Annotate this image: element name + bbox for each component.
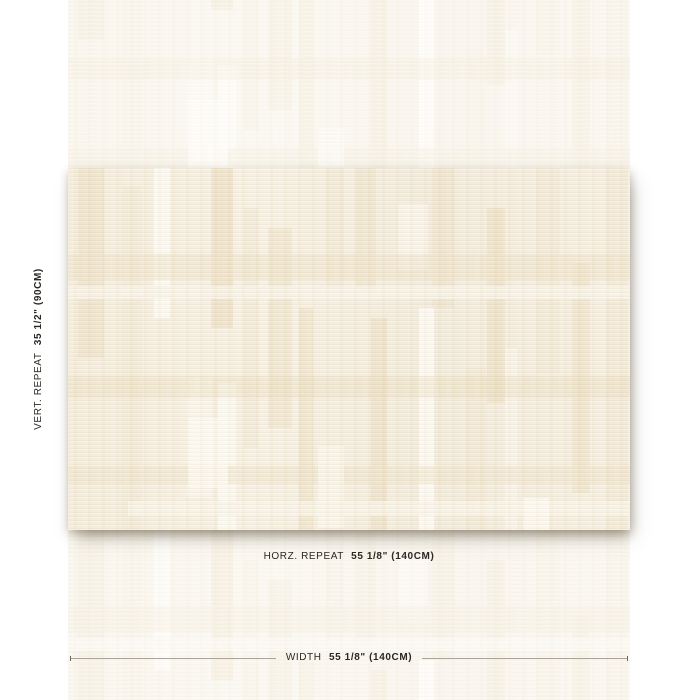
width-text: WIDTH bbox=[286, 652, 322, 663]
horizontal-repeat-label: HORZ. REPEAT 55 1/8" (140CM) bbox=[68, 551, 630, 563]
vertical-repeat-value: 35 1/2" (90CM) bbox=[33, 268, 44, 345]
width-dimension: WIDTH 55 1/8" (140CM) bbox=[70, 652, 628, 664]
vertical-repeat-label: VERT. REPEAT 35 1/2" (90CM) bbox=[33, 268, 45, 430]
pattern-wash-overlay bbox=[68, 0, 630, 168]
horizontal-repeat-value: 55 1/8" (140CM) bbox=[351, 551, 434, 562]
dimension-line-left bbox=[70, 658, 276, 659]
product-spec-image: VERT. REPEAT 35 1/2" (90CM) HORZ. REPEAT… bbox=[0, 0, 700, 700]
pattern-tile bbox=[68, 168, 630, 530]
vertical-repeat-text: VERT. REPEAT bbox=[33, 353, 44, 430]
stria-texture-overlay bbox=[68, 168, 630, 530]
horizontal-repeat-text: HORZ. REPEAT bbox=[264, 551, 344, 562]
width-value: 55 1/8" (140CM) bbox=[329, 652, 412, 663]
dimension-line-right bbox=[422, 658, 628, 659]
dimension-end-tick bbox=[627, 656, 628, 661]
fabric-swatch bbox=[68, 168, 630, 530]
dimension-end-tick bbox=[70, 656, 71, 661]
width-label: WIDTH 55 1/8" (140CM) bbox=[276, 652, 422, 664]
background-pattern-top bbox=[68, 0, 630, 168]
